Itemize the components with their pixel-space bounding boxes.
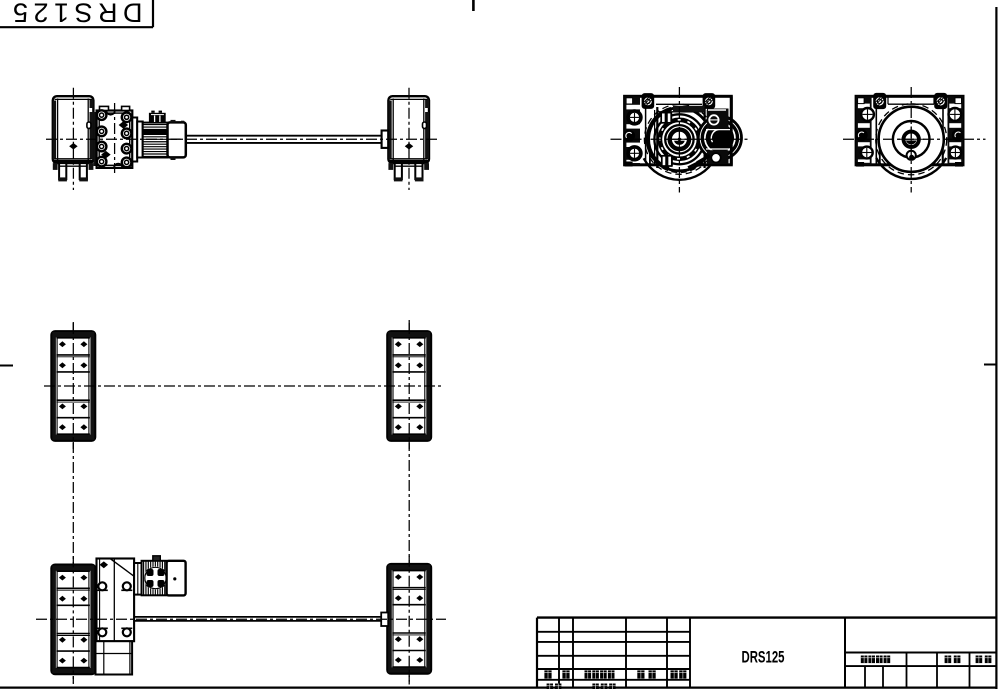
svg-text:DRS125: DRS125 xyxy=(742,648,785,667)
svg-text:DRS125: DRS125 xyxy=(7,0,142,28)
